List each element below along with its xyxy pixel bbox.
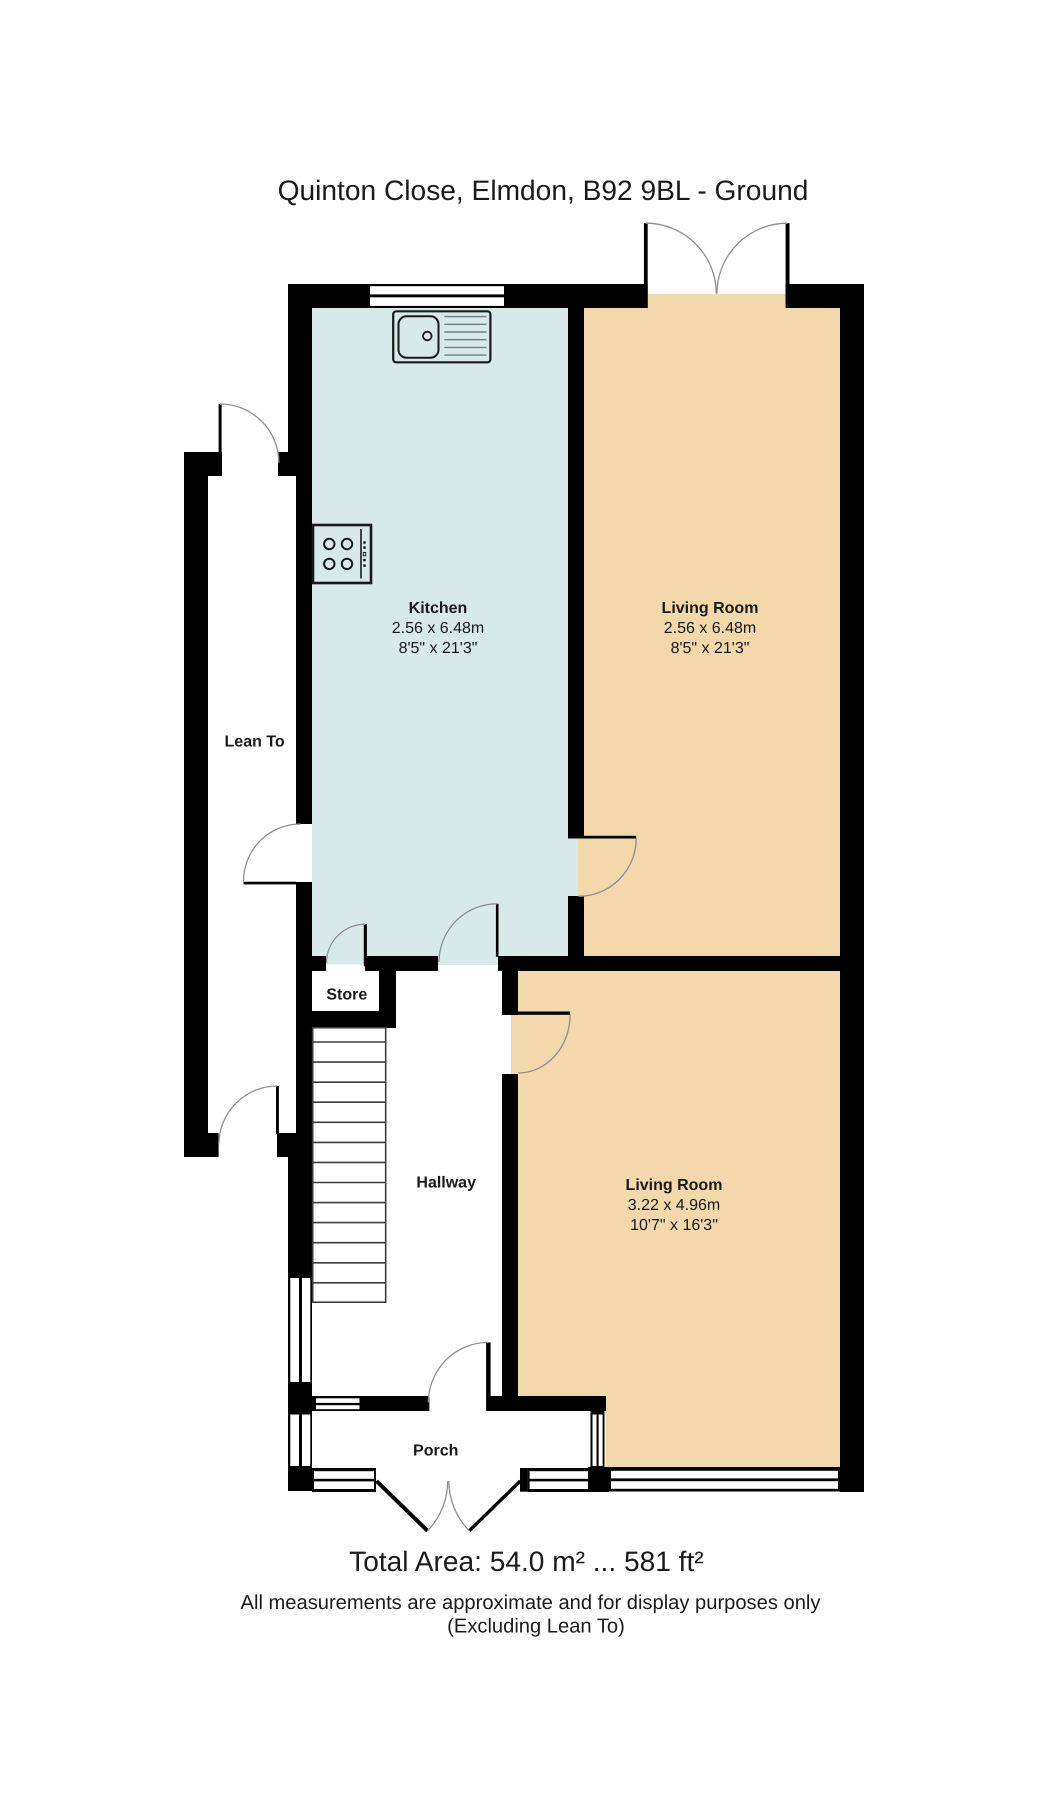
svg-text:10'7" x 16'3": 10'7" x 16'3" [630, 1217, 718, 1234]
svg-text:2.56 x 6.48m: 2.56 x 6.48m [664, 620, 757, 637]
svg-text:8'5" x 21'3": 8'5" x 21'3" [671, 640, 750, 657]
svg-text:Porch: Porch [413, 1443, 458, 1460]
svg-text:Living Room: Living Room [626, 1177, 723, 1194]
svg-text:2.56 x 6.48m: 2.56 x 6.48m [392, 620, 485, 637]
svg-text:Living Room: Living Room [662, 600, 759, 617]
svg-text:3.22 x 4.96m: 3.22 x 4.96m [628, 1197, 721, 1214]
svg-text:Quinton Close, Elmdon, B92 9BL: Quinton Close, Elmdon, B92 9BL - Ground [278, 175, 809, 206]
svg-text:(Excluding Lean To): (Excluding Lean To) [447, 1616, 625, 1638]
svg-text:Hallway: Hallway [416, 1175, 476, 1192]
svg-text:Lean To: Lean To [225, 734, 285, 751]
svg-text:All measurements are approxima: All measurements are approximate and for… [241, 1592, 822, 1614]
svg-text:Store: Store [326, 987, 367, 1004]
svg-text:Kitchen: Kitchen [409, 600, 468, 617]
svg-text:8'5" x 21'3": 8'5" x 21'3" [399, 640, 478, 657]
svg-text:Total Area: 54.0 m² ... 581 ft: Total Area: 54.0 m² ... 581 ft² [349, 1546, 703, 1577]
